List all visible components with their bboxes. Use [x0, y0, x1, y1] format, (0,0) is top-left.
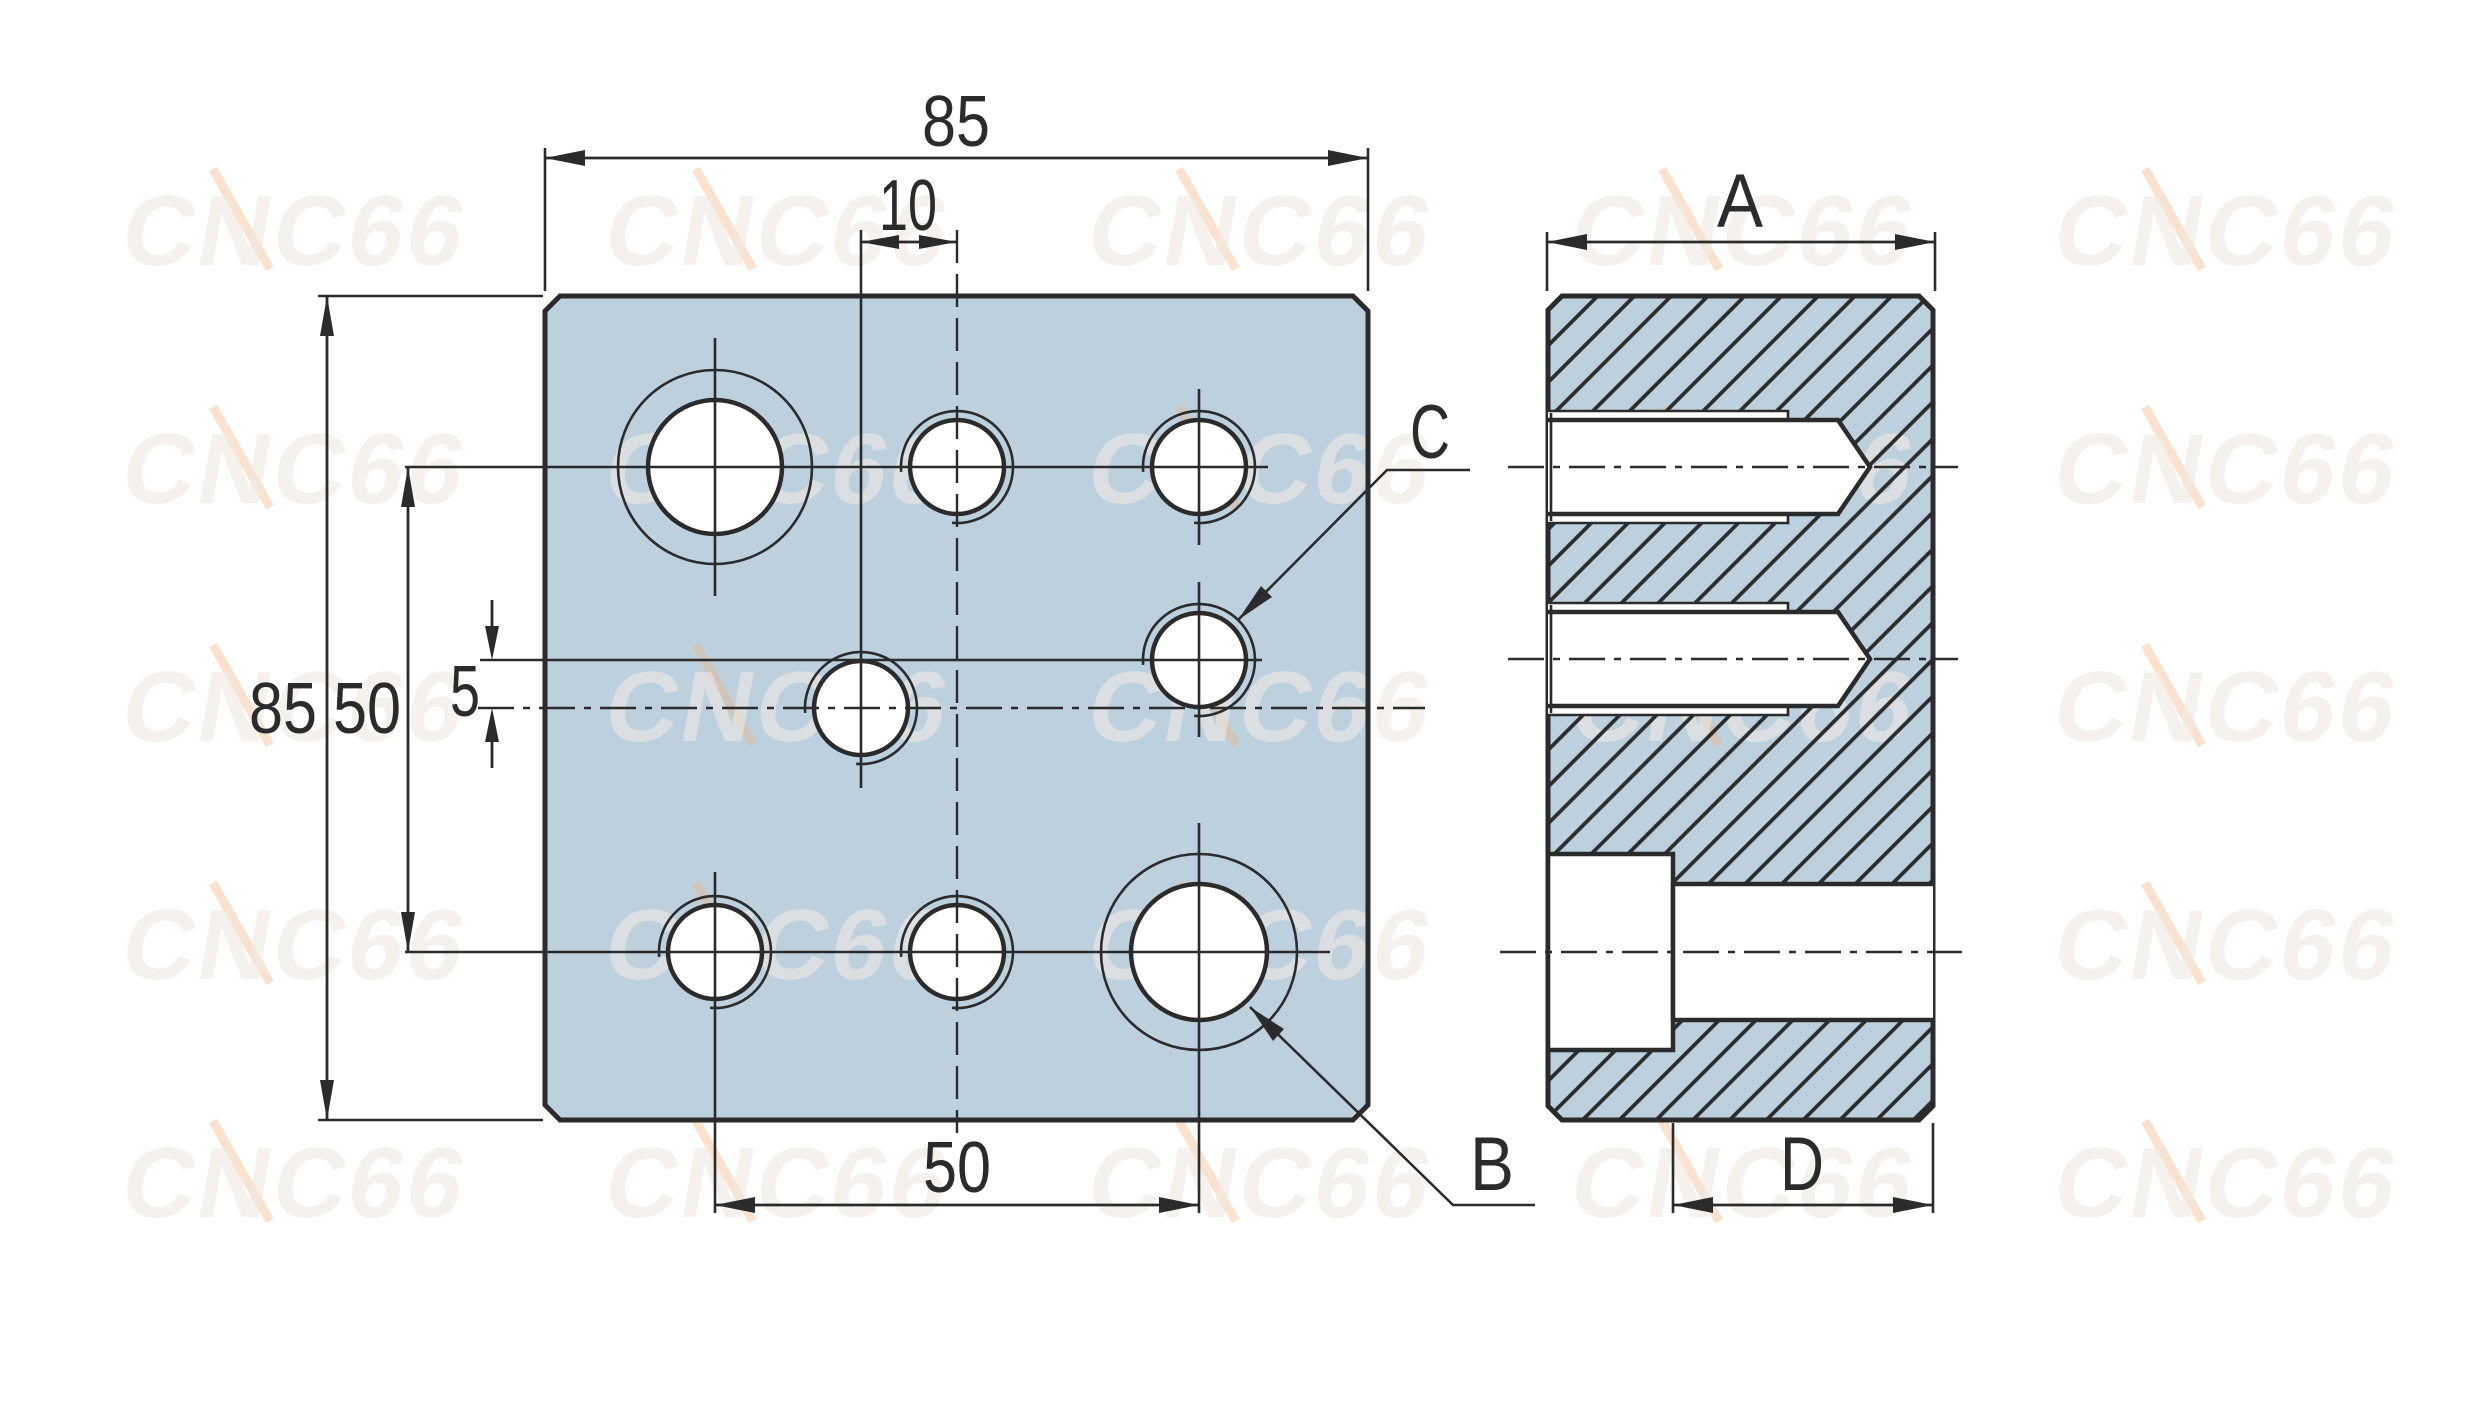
- watermark-text: CNC66: [597, 890, 959, 1001]
- watermark-text: CNC66: [114, 1128, 476, 1239]
- watermark: CNC66: [597, 883, 959, 1001]
- dim-center-offset-value: 10: [879, 166, 937, 246]
- watermark: CNC66: [1563, 1121, 1925, 1239]
- watermark: CNC66: [2046, 169, 2408, 287]
- dim-left-height-value: 85: [249, 669, 317, 749]
- dim-side-bore-value: D: [1780, 1122, 1824, 1207]
- watermark-text: CNC66: [2046, 652, 2408, 763]
- watermark: CNC66: [597, 1121, 959, 1239]
- watermark: CNC66: [114, 883, 476, 1001]
- watermark: CNC66: [1080, 1121, 1442, 1239]
- watermark-text: CNC66: [1080, 1128, 1442, 1239]
- dim-left-span-value: 50: [333, 669, 401, 749]
- watermark-text: CNC66: [597, 1128, 959, 1239]
- watermark-text: CNC66: [2046, 890, 2408, 1001]
- label-hole-c: C: [1410, 390, 1450, 475]
- engineering-drawing: CNC66CNC66CNC66CNC66CNC66CNC66CNC66CNC66…: [0, 0, 2480, 1417]
- watermark-text: CNC66: [2046, 1128, 2408, 1239]
- watermark: CNC66: [114, 1121, 476, 1239]
- label-hole-b: B: [1470, 1122, 1514, 1207]
- dim-side-width-value: A: [1717, 159, 1763, 244]
- dim-bottom-span-value: 50: [923, 1128, 991, 1208]
- watermark: CNC66: [2046, 1121, 2408, 1239]
- side-view: [1500, 296, 1962, 1120]
- watermark: CNC66: [2046, 883, 2408, 1001]
- watermark-text: CNC66: [1080, 176, 1442, 287]
- dim-top-width-value: 85: [922, 82, 990, 162]
- watermark-text: CNC66: [114, 176, 476, 287]
- dim-row-offset-value: 5: [450, 652, 480, 732]
- watermark: CNC66: [1080, 169, 1442, 287]
- watermark: CNC66: [2046, 407, 2408, 525]
- watermark: CNC66: [2046, 645, 2408, 763]
- watermark: CNC66: [1080, 645, 1442, 763]
- watermark-text: CNC66: [114, 890, 476, 1001]
- watermark-text: CNC66: [2046, 414, 2408, 525]
- drawing-canvas: CNC66CNC66CNC66CNC66CNC66CNC66CNC66CNC66…: [0, 0, 2480, 1417]
- watermark-text: CNC66: [2046, 176, 2408, 287]
- watermark: CNC66: [114, 169, 476, 287]
- watermark-text: CNC66: [114, 414, 476, 525]
- watermark-text: CNC66: [1563, 1128, 1925, 1239]
